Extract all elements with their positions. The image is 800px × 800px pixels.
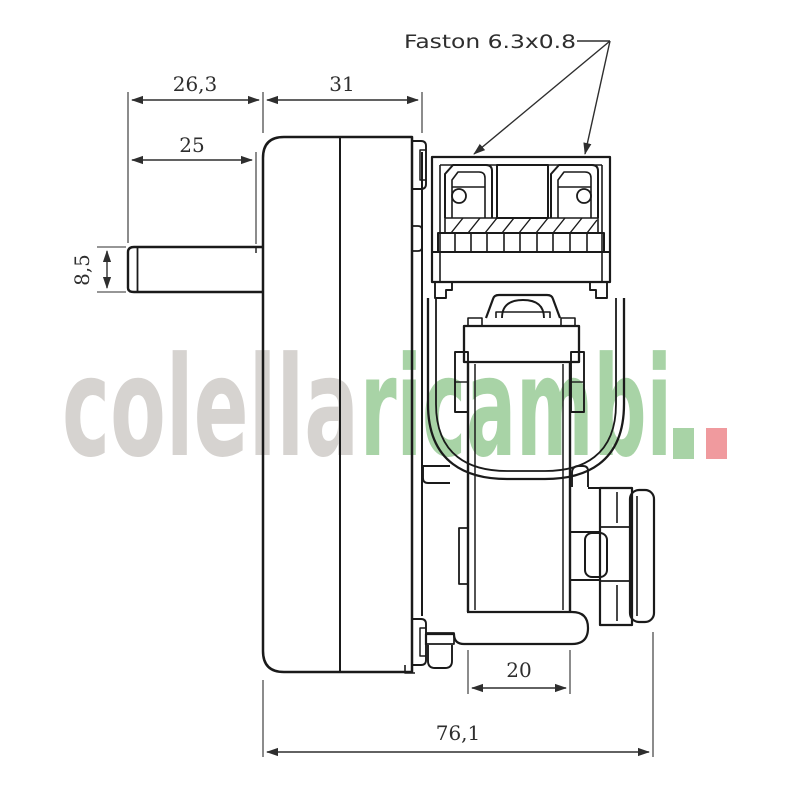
- dim-label-25: 25: [179, 133, 204, 157]
- dim-label-76-1: 76,1: [436, 721, 481, 745]
- technical-drawing-page: colella ricambi: [0, 0, 800, 800]
- watermark-text-gray: colella: [62, 327, 359, 488]
- dim-label-20: 20: [506, 658, 531, 682]
- watermark-dot-red: [706, 428, 727, 459]
- faston-terminal-label: Faston 6.3x0.8: [404, 31, 576, 53]
- watermark-text-green: ricambi: [360, 327, 672, 488]
- gear-motor-technical-drawing: colella ricambi: [0, 0, 800, 800]
- dim-label-8-5: 8,5: [70, 254, 94, 286]
- watermark: colella ricambi: [62, 327, 727, 488]
- dim-label-26-3: 26,3: [173, 72, 218, 96]
- dim-label-31: 31: [329, 72, 354, 96]
- watermark-dot-green: [673, 428, 694, 459]
